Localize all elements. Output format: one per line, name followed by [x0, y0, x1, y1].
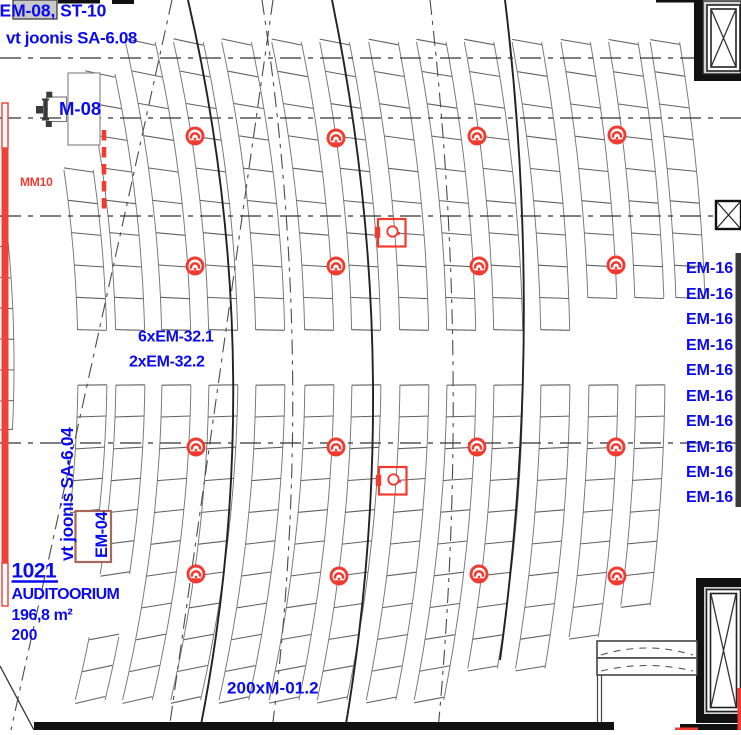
- svg-text:1021: 1021: [12, 560, 58, 583]
- svg-text:AUDITOORIUM: AUDITOORIUM: [12, 586, 120, 603]
- svg-text:6xEM-32.1: 6xEM-32.1: [138, 329, 214, 346]
- svg-text:EM-16: EM-16: [686, 439, 733, 456]
- svg-text:EM-16: EM-16: [686, 489, 733, 506]
- svg-text:M-08: M-08: [59, 98, 101, 119]
- svg-text:EM-08, ST-10: EM-08, ST-10: [0, 1, 107, 21]
- svg-text:EM-16: EM-16: [686, 362, 733, 379]
- svg-text:MM10: MM10: [20, 175, 53, 189]
- svg-text:EM-16: EM-16: [686, 311, 733, 328]
- svg-text:EM-04: EM-04: [93, 511, 111, 558]
- svg-text:2xEM-32.2: 2xEM-32.2: [129, 354, 205, 371]
- svg-text:200xM-01.2: 200xM-01.2: [227, 679, 319, 698]
- svg-text:EM-16: EM-16: [686, 286, 733, 303]
- svg-text:EM-16: EM-16: [686, 260, 733, 277]
- svg-text:200: 200: [12, 627, 38, 644]
- svg-text:196,8 m²: 196,8 m²: [12, 607, 73, 624]
- svg-text:EM-16: EM-16: [686, 337, 733, 354]
- svg-text:vt joonis SA-6.04: vt joonis SA-6.04: [57, 427, 77, 561]
- svg-text:EM-16: EM-16: [686, 413, 733, 430]
- svg-text:vt joonis SA-6.08: vt joonis SA-6.08: [6, 29, 137, 48]
- svg-text:EM-16: EM-16: [686, 388, 733, 405]
- svg-text:EM-16: EM-16: [686, 464, 733, 481]
